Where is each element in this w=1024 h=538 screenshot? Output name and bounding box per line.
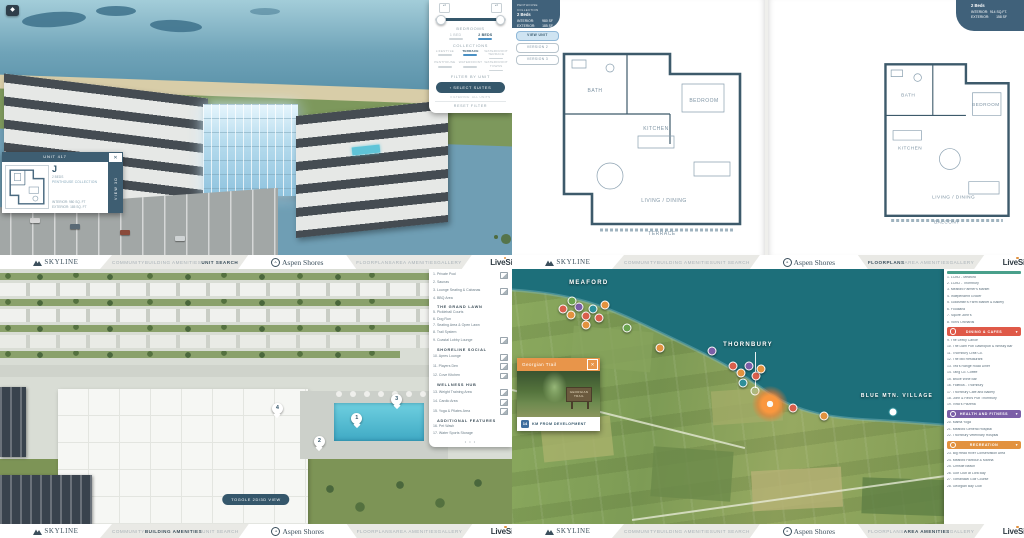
poi-pin[interactable] <box>601 300 610 309</box>
poi-pin[interactable] <box>708 347 717 356</box>
aspen-badge-icon: A <box>783 527 792 536</box>
amenity-item[interactable]: 4. BBQ Area <box>433 297 508 301</box>
room-label: BATH <box>901 93 915 99</box>
amenity-item[interactable]: 9. Coastal Lobby Lounge <box>433 337 508 344</box>
room-label: BEDROOM <box>972 102 1000 108</box>
livesite-logo: LiveSite <box>462 255 512 269</box>
legend-item[interactable]: 21. Meaford General Hospital <box>947 428 1021 432</box>
nav-item-area-amenities[interactable]: AREA AMENITIES <box>904 529 950 534</box>
legend-item[interactable]: 18. John & Red's Pub Thornbury <box>947 397 1021 401</box>
unit-card-title: UNIT 417 <box>2 152 108 162</box>
slider-handle-max[interactable] <box>496 15 506 25</box>
floorplan-thumbnail[interactable] <box>5 165 49 209</box>
amenity-item[interactable]: 10. Apres Lounge <box>433 354 508 361</box>
poi-pin[interactable] <box>756 365 765 374</box>
quadrant-floorplans: PENTHOUSE COLLECTION 2 Beds INTERIOR:980… <box>512 0 1024 269</box>
nav-right-items: FLOORPLANSAREA AMENITIESGALLERY <box>357 524 463 538</box>
room-label: KITCHEN <box>898 146 922 152</box>
nav-item-building-amenities[interactable]: BUILDING AMENITIES <box>145 529 202 534</box>
nav-left-items: COMMUNITYBUILDING AMENITIESUNIT SEARCH <box>112 524 239 538</box>
poi-pin[interactable] <box>623 323 632 332</box>
quadrant-area-amenities: MEAFORD THORNBURY BLUE MTN. VILLAGE Geor… <box>512 269 1024 538</box>
filtering-note: FILTERING: ALL UNITS <box>433 95 508 99</box>
poi-pin[interactable] <box>582 320 591 329</box>
legend-item[interactable]: 19. Vinci's Pizzeria <box>947 403 1021 407</box>
spec-exterior-value: 158 SF <box>996 15 1007 20</box>
green-band <box>0 351 400 358</box>
filter-chip-penthouse[interactable]: PENTHOUSE <box>433 61 457 71</box>
legend-item[interactable]: 12. The Mill Restaurant <box>947 358 1021 362</box>
poi-pin[interactable] <box>567 297 576 306</box>
legend-header-dining-&-cafes[interactable]: DINING & CAFES▾ <box>947 327 1021 336</box>
spec-exterior-label: EXTERIOR: <box>517 24 535 29</box>
navbar-building-amenities: SKYLINECOMMUNITYBUILDING AMENITIESUNIT S… <box>0 524 512 538</box>
legend-item[interactable]: 25. Christie Beach <box>947 465 1021 469</box>
nav-item-gallery[interactable]: GALLERY <box>437 260 462 265</box>
photo-highlight <box>542 371 567 403</box>
nav-item-unit-search[interactable]: UNIT SEARCH <box>202 529 239 534</box>
map-label-blue-mtn-village: BLUE MTN. VILLAGE <box>861 393 933 399</box>
legend-item[interactable]: 3. Meaford Farmer's Market <box>947 288 1021 292</box>
nav-item-area-amenities[interactable]: AREA AMENITIES <box>905 260 950 265</box>
legend-item[interactable]: 17. Thornbury Cafe and Bakery <box>947 391 1021 395</box>
version-3-button[interactable]: VERSION 3 <box>516 55 559 65</box>
right-unit-spec: 2 Beds INTERIOR:914 SQ.FT. EXTERIOR:158 … <box>956 0 1024 31</box>
legend-item[interactable]: 26. Golf Club at Lora Bay <box>947 472 1021 476</box>
legend-header-recreation[interactable]: RECREATION▾ <box>947 441 1021 450</box>
photo-icon <box>500 288 508 295</box>
collections-label: COLLECTIONS <box>433 43 508 48</box>
poi-popup-close-icon[interactable]: ✕ <box>587 359 598 370</box>
room-label: TERRACE <box>648 231 676 237</box>
skyline-logo: SKYLINE <box>0 255 112 269</box>
reset-filter-button[interactable]: RESET FILTER <box>433 104 508 109</box>
nav-item-community[interactable]: COMMUNITY <box>112 529 145 534</box>
navbar-floorplans: SKYLINECOMMUNITYBUILDING AMENITIESUNIT S… <box>512 255 1024 269</box>
building-right-wing <box>296 100 448 238</box>
legend-item[interactable]: 7. Squire John's <box>947 314 1021 318</box>
room-label: BATH <box>588 88 603 94</box>
mountain-icon <box>545 528 554 535</box>
legend-item[interactable]: 24. Meaford Harbour & Marina <box>947 459 1021 463</box>
nav-right-items: FLOORPLANSAREA AMENITIESGALLERY <box>356 255 462 269</box>
price-range-slider[interactable] <box>435 15 506 23</box>
nav-item-gallery[interactable]: GALLERY <box>950 260 975 265</box>
photo-icon <box>500 389 508 396</box>
unit-collection: PENTHOUSE COLLECTION <box>52 180 97 185</box>
mountain-icon <box>545 259 554 266</box>
livesite-logo: LiveSite <box>974 524 1024 538</box>
amenities-list-panel: 1. Private Pool2. Saunas3. Lounge Seatin… <box>429 269 512 447</box>
amenity-section-header: WELLNESS HUB <box>433 382 508 387</box>
legend-section-edge <box>947 271 1021 274</box>
unit-card: UNIT 417 J 2 BEDS <box>2 152 123 213</box>
spec-collection: PENTHOUSE COLLECTION <box>517 3 555 12</box>
amenity-item[interactable]: 12. Cove Kitchen <box>433 373 508 380</box>
amenity-section-header: ADDITIONAL FEATURES <box>433 418 508 423</box>
spec-exterior-label: EXTERIOR: <box>971 15 989 20</box>
poi-photo: GEORGIAN TRAIL <box>517 371 600 417</box>
amenity-item[interactable]: 8. Trail System <box>433 331 508 335</box>
quadrant-building-amenities: 1234 TOGGLE 2D/3D VIEW 1. Private Pool2.… <box>0 269 512 538</box>
nav-item-building-amenities[interactable]: BUILDING AMENITIES <box>145 260 201 265</box>
mountain-icon <box>33 528 42 535</box>
photo-icon <box>500 408 508 415</box>
aspen-badge-icon: A <box>783 258 792 267</box>
category-icon <box>950 328 957 335</box>
car <box>120 230 130 235</box>
breakwater <box>250 8 280 15</box>
category-icon <box>950 411 957 418</box>
filter-chip-terrace[interactable]: TERRACE <box>459 50 483 60</box>
nav-item-floorplans[interactable]: FLOORPLANS <box>868 529 904 534</box>
photo-icon <box>500 399 508 406</box>
distance-icon: 14 <box>521 420 529 428</box>
nav-item-building-amenities[interactable]: BUILDING AMENITIES <box>657 529 713 534</box>
legend-item[interactable]: 13. Ted's Range Road Diner <box>947 365 1021 369</box>
poi-popup: Georgian Trail ✕ GEORGIAN TRAIL 14 KM FR… <box>517 358 600 431</box>
skyline-logo: SKYLINE <box>0 524 112 538</box>
amenity-item[interactable]: 16. Pet Wash <box>433 425 508 429</box>
poi-pin[interactable] <box>575 302 584 311</box>
poi-pin[interactable] <box>588 304 597 313</box>
filter-chip-lifestyle[interactable]: LIFESTYLE <box>433 50 457 60</box>
legend-item[interactable]: 8. Von's Orchards <box>947 321 1021 325</box>
photo-icon <box>500 272 508 279</box>
nav-item-floorplans[interactable]: FLOORPLANS <box>868 260 905 265</box>
site-marker-2[interactable]: 2 <box>314 436 325 447</box>
legend-item[interactable]: 28. Georgian Bay Club <box>947 485 1021 489</box>
island <box>96 6 136 16</box>
slider-handle-min[interactable] <box>436 15 446 25</box>
poi-popup-title: Georgian Trail <box>522 362 587 367</box>
amenity-item[interactable]: 1. Private Pool <box>433 272 508 279</box>
skyline-logo: SKYLINE <box>512 255 624 269</box>
version-buttons: VIEW UNITVERSION 2VERSION 3 <box>516 31 559 67</box>
room-label: LIVING / DINING <box>932 195 975 201</box>
poi-pin[interactable] <box>595 314 604 323</box>
skyline-logo: SKYLINE <box>512 524 624 538</box>
map-label-meaford: MEAFORD <box>569 280 608 286</box>
aspen-badge-icon: A <box>271 527 280 536</box>
amenity-item[interactable]: 7. Seating Area & Open Lawn <box>433 324 508 328</box>
livesite-dot-icon <box>504 526 507 529</box>
nav-item-unit-search[interactable]: UNIT SEARCH <box>713 529 750 534</box>
amenity-item[interactable]: 11. Players Den <box>433 363 508 370</box>
spec-beds: 2 Beds <box>517 12 555 19</box>
amenity-item[interactable]: 17. Water Sports Storage <box>433 432 508 436</box>
collection-options: LIFESTYLETERRACEWATERFRONT TERRACEPENTHO… <box>433 50 508 71</box>
legend-item[interactable]: 4. Independent Grocer <box>947 295 1021 299</box>
development-site-pin[interactable] <box>752 386 788 422</box>
amenity-item[interactable]: 5. Pickleball Courts <box>433 311 508 315</box>
view-3d-tab[interactable]: VIEW 3D <box>114 163 118 213</box>
floorplan-pages: PENTHOUSE COLLECTION 2 Beds INTERIOR:980… <box>512 0 1024 255</box>
legend-item[interactable]: 1. LCBO - Meaford <box>947 276 1021 280</box>
unit-filter-panel: ▴▾ ▴▾ BEDROOMS 1 BED2 BEDS COLLECTIONS L… <box>429 0 512 113</box>
compass-icon[interactable]: ◆ <box>6 5 19 16</box>
livesite-dot-icon <box>1016 257 1019 260</box>
category-icon <box>950 442 957 449</box>
nav-item-community[interactable]: COMMUNITY <box>624 529 657 534</box>
legend-item[interactable]: 16. Fidelica - Thornbury <box>947 384 1021 388</box>
spec-exterior-value: 185 SF <box>542 24 553 29</box>
floorplan-drawing-right: BATH BEDROOM KITCHEN LIVING / DINING BAL… <box>876 52 1018 230</box>
amenity-section-header: THE GRAND LAWN <box>433 304 508 309</box>
legend-item[interactable]: 9. The Leeky Canoe <box>947 339 1021 343</box>
navbar-area-amenities: SKYLINECOMMUNITYBUILDING AMENITIESUNIT S… <box>512 524 1024 538</box>
room-label: BEDROOM <box>689 98 718 104</box>
quadrant-unit-search: ◆ ▴▾ ▴▾ BEDROOMS 1 BED2 BEDS COLLECTIONS… <box>0 0 512 269</box>
unit-card-close-icon[interactable]: ✕ <box>108 152 123 163</box>
legend-item[interactable]: 2. LCBO - Thornbury <box>947 282 1021 286</box>
filter-chip-waterfront-towns[interactable]: WATERFRONT TOWNS <box>484 61 508 71</box>
price-min-stepper[interactable]: ▴▾ <box>439 3 450 13</box>
nav-item-community[interactable]: COMMUNITY <box>624 260 657 265</box>
livesite-logo: LiveSite <box>462 524 512 538</box>
filter-chip-1-bed[interactable]: 1 BED <box>449 33 463 40</box>
car <box>175 236 185 241</box>
legend-item[interactable]: 23. Big Head River Conservation Area <box>947 452 1021 456</box>
bedrooms-label: BEDROOMS <box>433 26 508 31</box>
amenity-item[interactable]: 14. Cardio Area <box>433 399 508 406</box>
filter-chip-waterfront-terrace[interactable]: WATERFRONT TERRACE <box>484 50 508 60</box>
map-label-thornbury: THORNBURY <box>723 342 773 348</box>
photo-icon <box>500 373 508 380</box>
legend-item[interactable]: 20. Mama Yoga <box>947 421 1021 425</box>
nav-item-floorplans[interactable]: FLOORPLANS <box>357 529 393 534</box>
nav-item-gallery[interactable]: GALLERY <box>950 529 975 534</box>
livesite-logo: LiveSite <box>974 255 1024 269</box>
nav-item-floorplans[interactable]: FLOORPLANS <box>356 260 392 265</box>
livesite-four-view-stage: ◆ ▴▾ ▴▾ BEDROOMS 1 BED2 BEDS COLLECTIONS… <box>0 0 1024 538</box>
select-suites-button[interactable]: ‹ SELECT SUITES <box>436 82 505 93</box>
chevron-down-icon: ▾ <box>1016 443 1018 447</box>
aspen-shores-logo: AAspen Shores <box>750 255 868 269</box>
nav-right-items: FLOORPLANSAREA AMENITIESGALLERY <box>868 255 974 269</box>
amenity-item[interactable]: 13. Weight Training Area <box>433 389 508 396</box>
nav-item-building-amenities[interactable]: BUILDING AMENITIES <box>657 260 713 265</box>
aspen-shores-logo: AAspen Shores <box>750 524 868 538</box>
car <box>70 224 80 229</box>
chevron-down-icon: ▾ <box>1016 412 1018 416</box>
photo-icon <box>500 337 508 344</box>
site-marker-4[interactable]: 4 <box>272 403 283 414</box>
mountain-icon <box>33 259 42 266</box>
amenity-item[interactable]: 2. Saunas <box>433 281 508 285</box>
legend-item[interactable]: 5. Goldsmith's Farm Market & Bakery <box>947 301 1021 305</box>
aspen-shores-logo: AAspen Shores <box>239 524 357 538</box>
nav-item-unit-search[interactable]: UNIT SEARCH <box>201 260 238 265</box>
glass-mullions <box>203 104 298 196</box>
spec-beds: 2 Beds <box>971 3 1019 10</box>
amenity-section-header: SHORELINE SOCIAL <box>433 347 508 352</box>
poi-pin[interactable] <box>789 404 798 413</box>
poi-pin[interactable] <box>745 361 754 370</box>
nav-item-area-amenities[interactable]: AREA AMENITIES <box>393 529 438 534</box>
nav-left-items: COMMUNITYBUILDING AMENITIESUNIT SEARCH <box>624 524 750 538</box>
poi-pin[interactable] <box>738 378 747 387</box>
photo-icon <box>500 354 508 361</box>
poi-pin[interactable] <box>655 343 664 352</box>
photo-icon <box>500 363 508 370</box>
left-unit-spec: PENTHOUSE COLLECTION 2 Beds INTERIOR:980… <box>512 0 560 28</box>
nav-item-community[interactable]: COMMUNITY <box>112 260 145 265</box>
aspen-badge-icon: A <box>271 258 280 267</box>
room-label: BALCONY <box>934 219 960 225</box>
aspen-shores-logo: AAspen Shores <box>238 255 356 269</box>
nav-left-items: COMMUNITYBUILDING AMENITIESUNIT SEARCH <box>624 255 750 269</box>
nav-left-items: COMMUNITYBUILDING AMENITIESUNIT SEARCH <box>112 255 238 269</box>
slider-fill <box>440 18 501 21</box>
poi-pin[interactable] <box>729 361 738 370</box>
unit-exterior: EXTERIOR: 185 SQ. FT <box>52 205 97 210</box>
nav-item-unit-search[interactable]: UNIT SEARCH <box>713 260 750 265</box>
poi-distance: KM FROM DEVELOPMENT <box>532 422 586 426</box>
room-label: LIVING / DINING <box>641 198 687 204</box>
legend-item[interactable]: 11. Thornbury Craft Co. <box>947 352 1021 356</box>
chevron-down-icon: ▾ <box>1016 330 1018 334</box>
nav-item-area-amenities[interactable]: AREA AMENITIES <box>392 260 437 265</box>
livesite-dot-icon <box>1016 526 1019 529</box>
navbar-unit-search: SKYLINECOMMUNITYBUILDING AMENITIESUNIT S… <box>0 255 512 269</box>
room-label: KITCHEN <box>643 126 668 132</box>
building-glass-atrium <box>203 104 298 196</box>
filter-chip-2-beds[interactable]: 2 BEDS <box>478 33 492 40</box>
car <box>30 218 40 223</box>
amenity-item[interactable]: 6. Dog Run <box>433 318 508 322</box>
version-2-button[interactable]: VERSION 2 <box>516 43 559 53</box>
poi-pin[interactable] <box>819 411 828 420</box>
bedroom-options: 1 BED2 BEDS <box>433 33 508 40</box>
divider <box>435 101 506 102</box>
legend-item[interactable]: 27. Tomahawk Golf Course <box>947 478 1021 482</box>
legend-item[interactable]: 10. The Dam Pub Gastropub & Whisky Bar <box>947 345 1021 349</box>
price-max-stepper[interactable]: ▴▾ <box>491 3 502 13</box>
legend-item[interactable]: 22. Thornbury Veterinary Hospital <box>947 434 1021 438</box>
legend-item[interactable]: 15. Bruce Wine Bar <box>947 378 1021 382</box>
amenity-item[interactable]: 3. Lounge Seating & Cabanas <box>433 288 508 295</box>
legend-item[interactable]: 6. Foodland <box>947 308 1021 312</box>
neighbor-building <box>0 387 26 457</box>
floorplan-drawing-left: BATH BEDROOM KITCHEN LIVING / DINING TER… <box>552 44 752 240</box>
amenity-item[interactable]: 15. Yoga & Pilates Area <box>433 408 508 415</box>
map-legend-panel: 1. LCBO - Meaford2. LCBO - Thornbury3. M… <box>944 269 1024 524</box>
panel-overflow-dots[interactable]: • • • <box>433 438 508 445</box>
nav-item-gallery[interactable]: GALLERY <box>438 529 463 534</box>
poi-pin[interactable] <box>566 311 575 320</box>
nav-right-items: FLOORPLANSAREA AMENITIESGALLERY <box>868 524 974 538</box>
plan-letter: J <box>52 165 97 175</box>
trees <box>494 235 498 239</box>
toggle-2d-3d-button[interactable]: TOGGLE 2D/3D VIEW <box>222 494 289 505</box>
blue-mtn-village-pin[interactable] <box>888 408 897 417</box>
poi-pin[interactable] <box>736 369 745 378</box>
filter-by-unit-label: FILTER BY UNIT <box>433 74 508 79</box>
outdoor-pool <box>334 403 424 441</box>
pool-umbrellas <box>336 391 342 397</box>
view-unit-button[interactable]: VIEW UNIT <box>516 31 559 41</box>
legend-header-health-and-fitness[interactable]: HEALTH AND FITNESS▾ <box>947 410 1021 419</box>
filter-chip-waterfront[interactable]: WATERFRONT <box>459 61 483 71</box>
legend-item[interactable]: 14. Tang Co. Coffee <box>947 371 1021 375</box>
neighbor-building <box>0 475 92 524</box>
trail-sign: GEORGIAN TRAIL <box>566 387 592 402</box>
